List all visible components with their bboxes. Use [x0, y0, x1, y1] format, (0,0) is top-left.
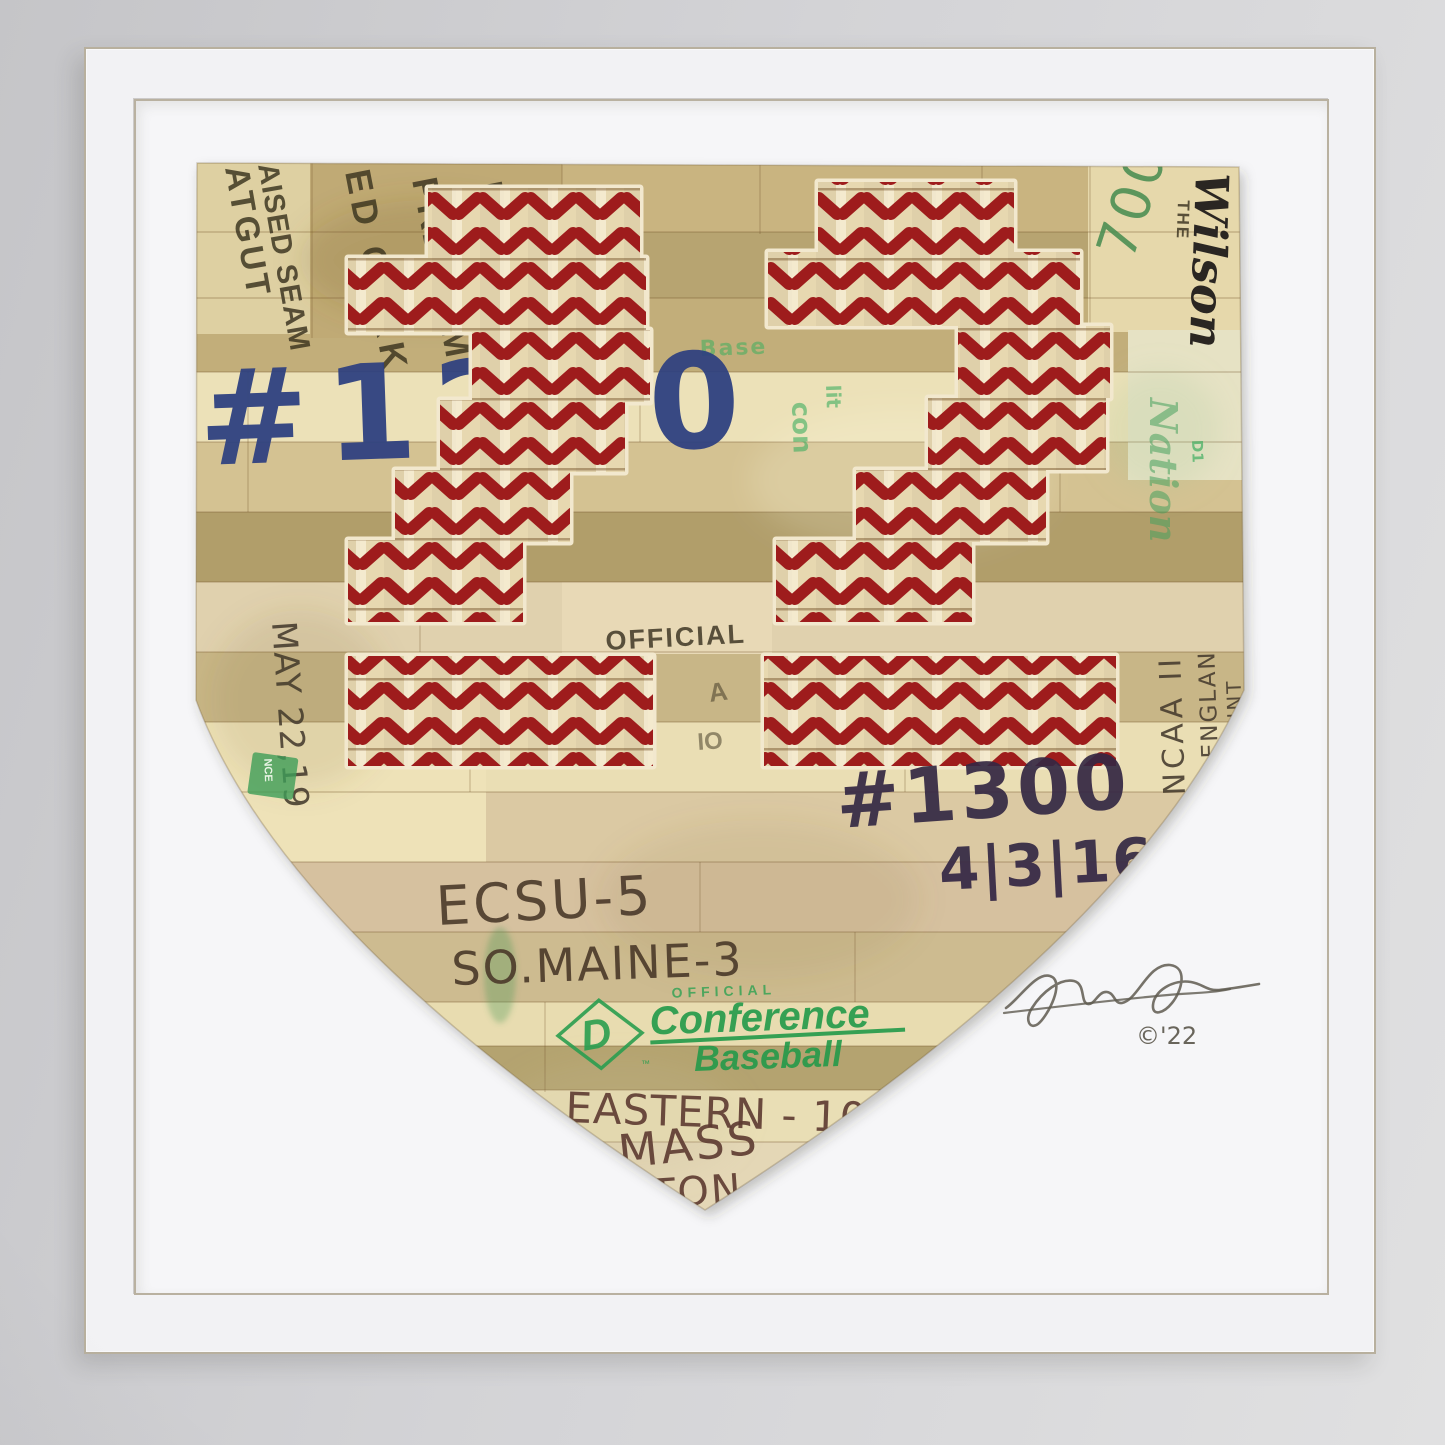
framed-artwork-photo: ATGUT AISED SEAM ED CORK PREMIUM LEATHER…	[0, 0, 1445, 1445]
handwritten-ecsu-score: ECSU-5	[434, 864, 654, 938]
handwritten-date-4316: 4|3|16	[937, 825, 1156, 904]
signature-year: ©'22	[1136, 1022, 1197, 1050]
green-stamp-fragment-nce: NCE	[247, 752, 298, 800]
green-fragment-lit: lit	[821, 384, 846, 409]
artist-signature: ©'22	[1004, 965, 1259, 1050]
official-partial-io: IO	[697, 727, 724, 756]
green-d1-mark: D1	[1188, 440, 1207, 464]
handwritten-england: ENGLAN	[1194, 650, 1224, 759]
green-fragment-con: con	[785, 401, 817, 454]
green-script-fragment: Nation	[1141, 397, 1186, 542]
diamond-tm-mark: ™	[641, 1059, 650, 1069]
artwork-svg: ATGUT AISED SEAM ED CORK PREMIUM LEATHER…	[0, 0, 1445, 1445]
stamp-baseball: Baseball	[693, 1033, 843, 1079]
handwritten-ton-partial: TON	[648, 1166, 744, 1218]
handwritten-ncaa: NCAA II	[1153, 654, 1193, 796]
home-plate: ATGUT AISED SEAM ED CORK PREMIUM LEATHER…	[186, 137, 1250, 1218]
nce-fragment-label: NCE	[261, 758, 274, 782]
signature-flourish	[1006, 965, 1259, 1026]
wilson-logo: Wilson	[1179, 172, 1239, 350]
